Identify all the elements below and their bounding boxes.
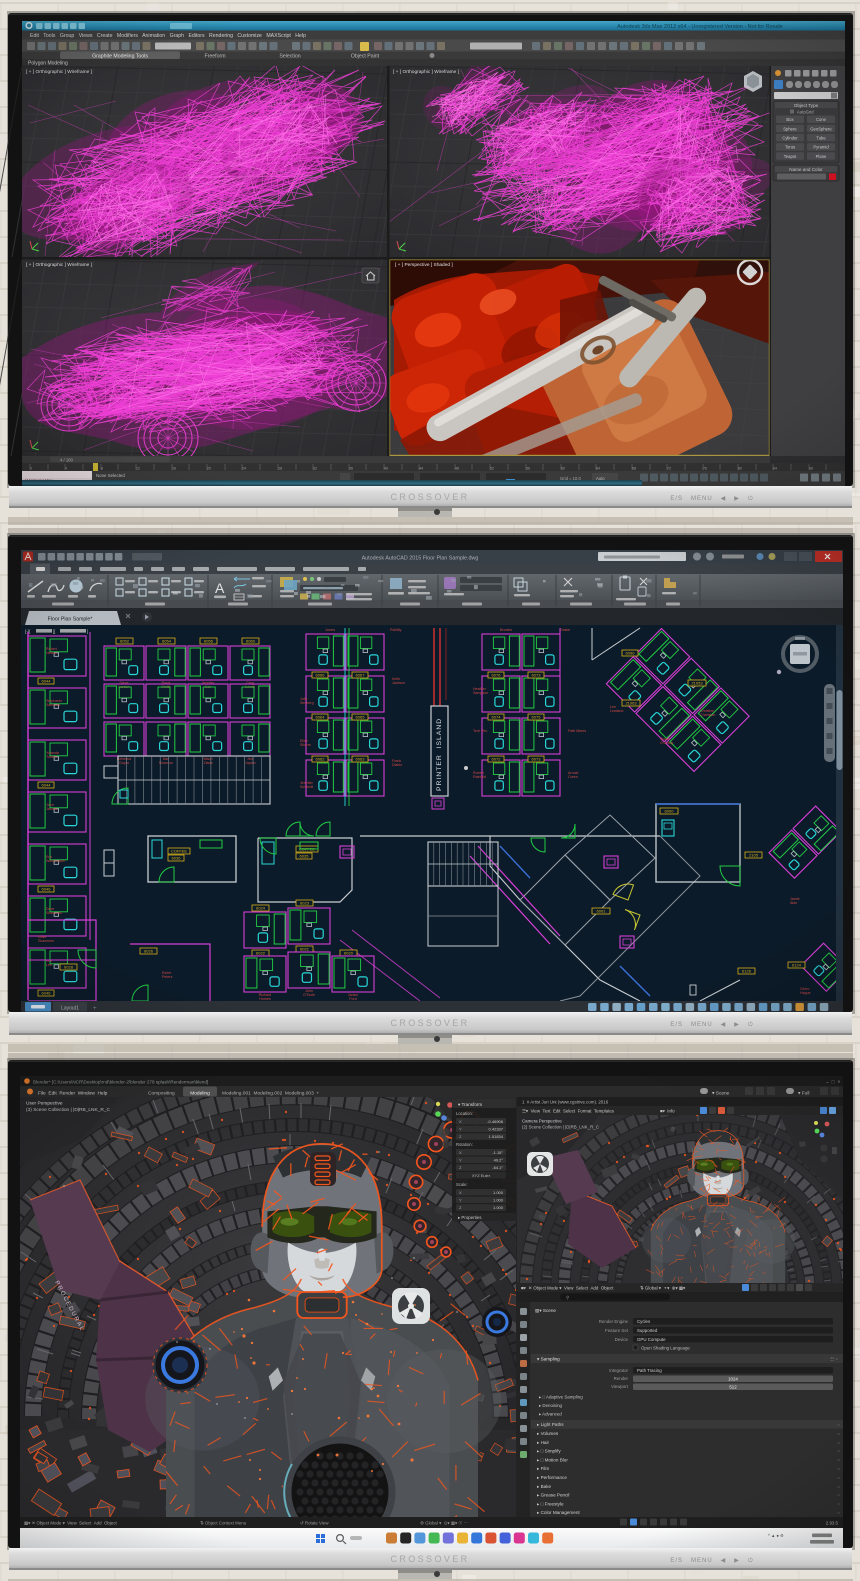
- svg-text:E/S MENU ◀ ▶ ⏻: E/S MENU ◀ ▶ ⏻: [670, 495, 753, 502]
- svg-text:CROSSOVER: CROSSOVER: [390, 1554, 469, 1564]
- svg-text:CROSSOVER: CROSSOVER: [390, 492, 469, 502]
- svg-text:E/S MENU ◀ ▶ ⏻: E/S MENU ◀ ▶ ⏻: [670, 1021, 753, 1028]
- svg-text:E/S MENU ◀ ▶ ⏻: E/S MENU ◀ ▶ ⏻: [670, 1557, 753, 1564]
- svg-text:CROSSOVER: CROSSOVER: [390, 1018, 469, 1028]
